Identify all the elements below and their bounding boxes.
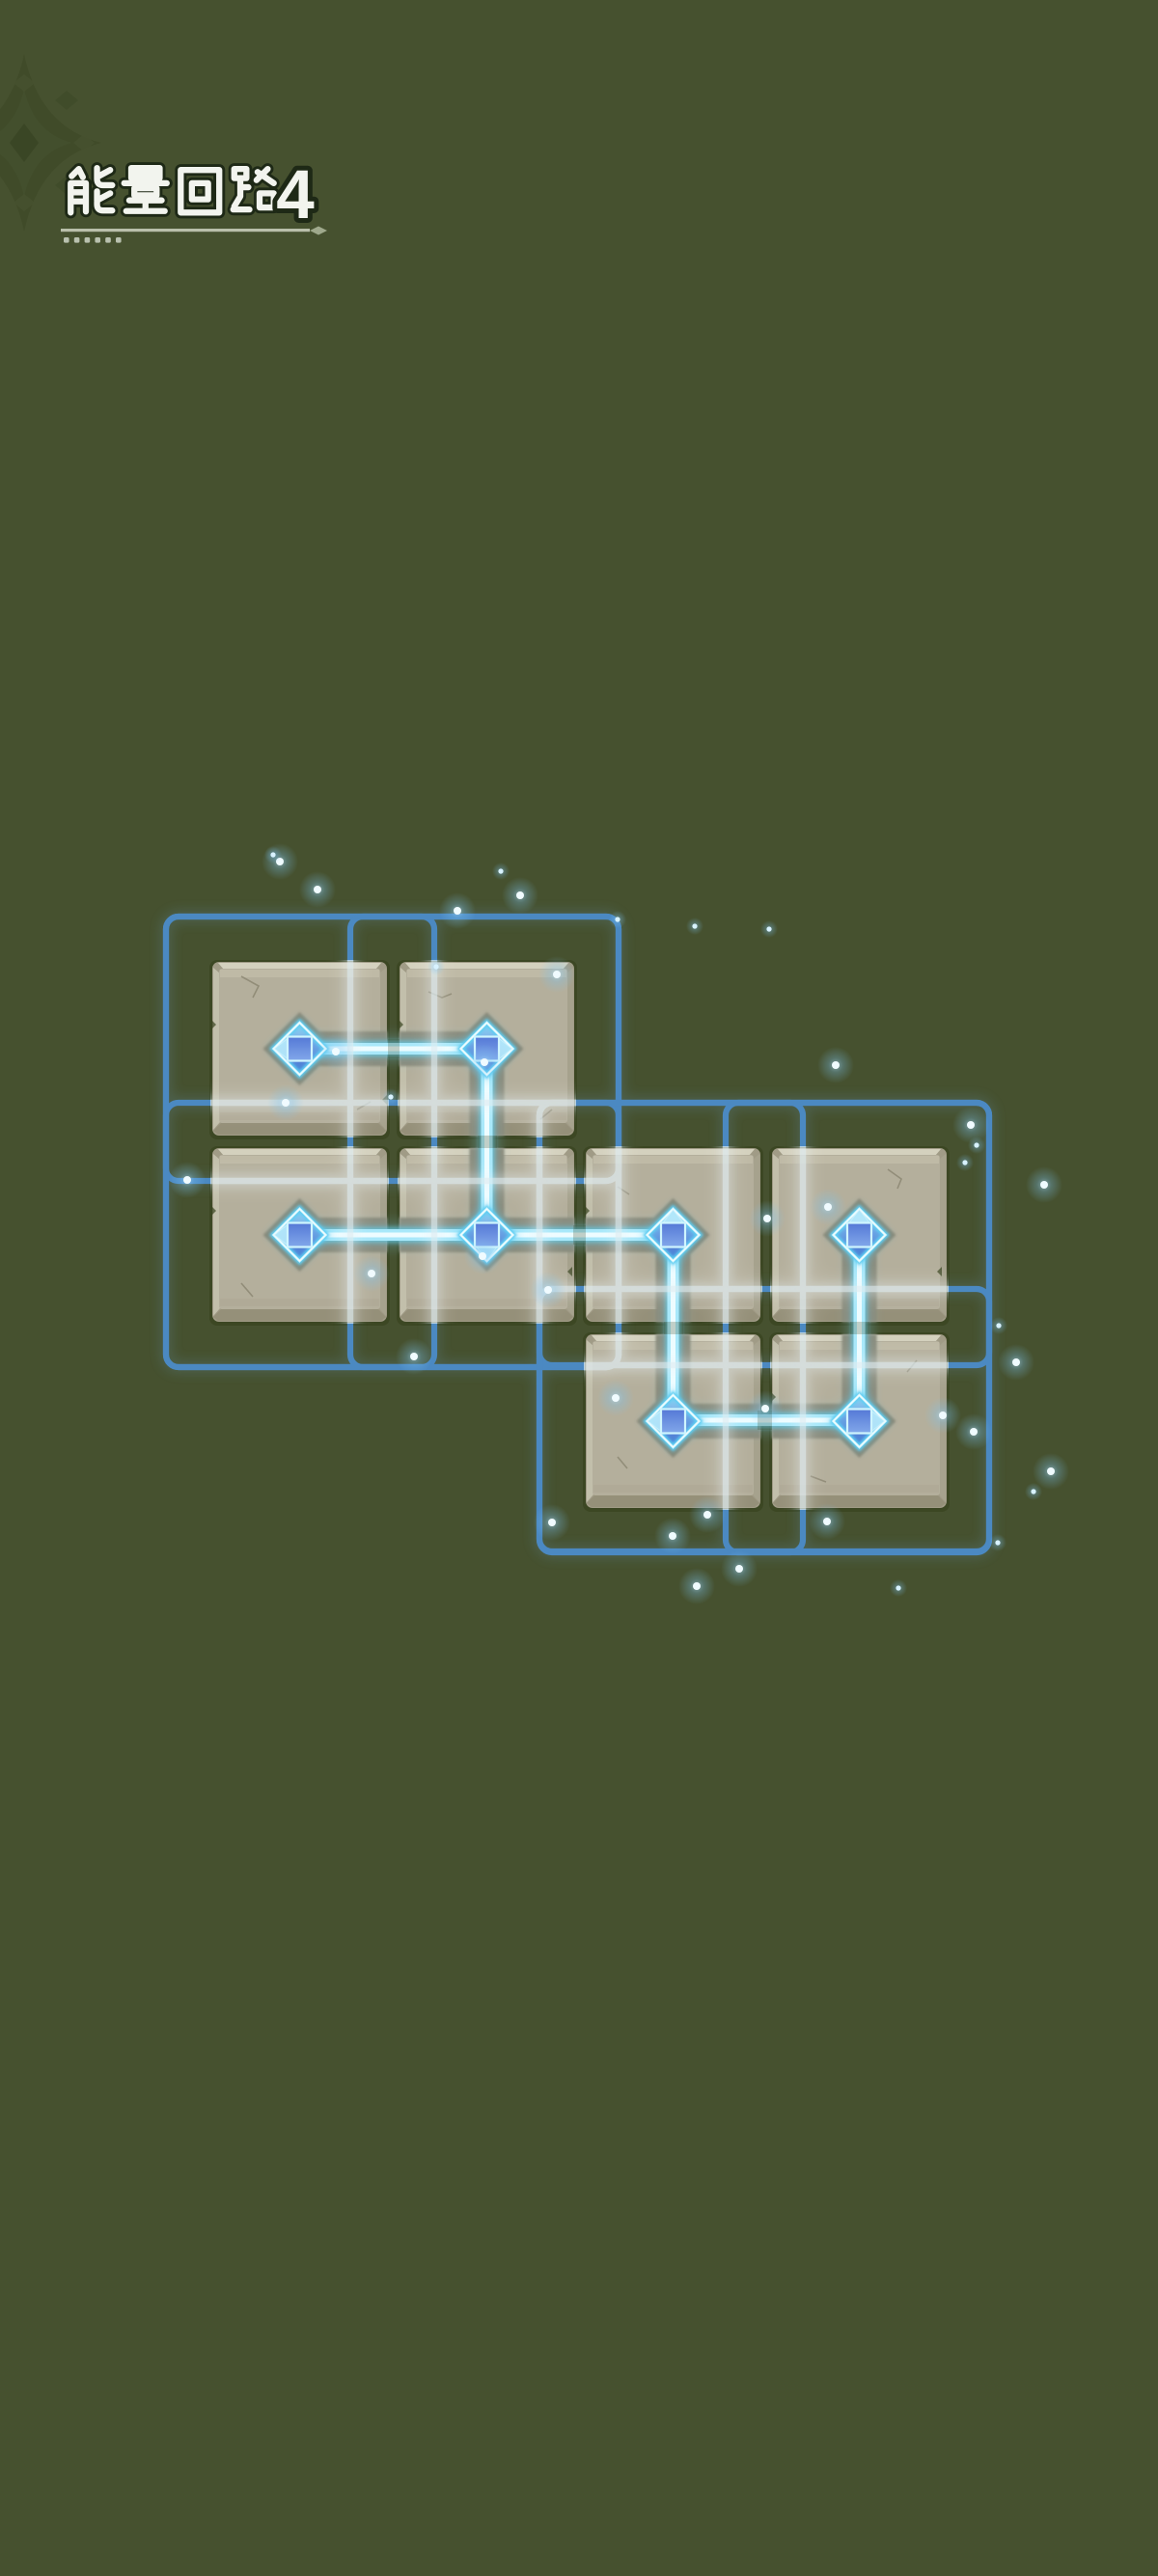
svg-text:4: 4 xyxy=(276,157,315,233)
